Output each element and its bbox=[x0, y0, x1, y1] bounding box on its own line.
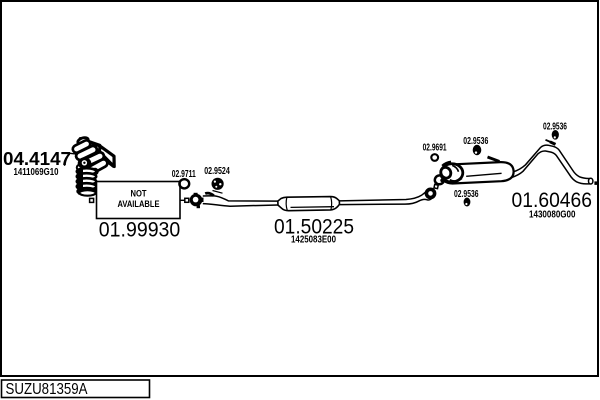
svg-text:AVAILABLE: AVAILABLE bbox=[118, 199, 160, 209]
svg-text:02.9691: 02.9691 bbox=[423, 143, 447, 154]
svg-text:1430080G00: 1430080G00 bbox=[529, 210, 576, 221]
svg-text:01.60466: 01.60466 bbox=[512, 188, 593, 212]
svg-text:1425083E00: 1425083E00 bbox=[291, 235, 336, 246]
svg-text:02.9524: 02.9524 bbox=[204, 166, 230, 177]
svg-text:04.4147: 04.4147 bbox=[3, 148, 71, 169]
svg-text:SUZU81359A: SUZU81359A bbox=[6, 381, 88, 398]
svg-text:1411069G10: 1411069G10 bbox=[14, 167, 59, 178]
svg-text:NOT: NOT bbox=[131, 189, 147, 199]
svg-text:01.99930: 01.99930 bbox=[99, 218, 181, 242]
